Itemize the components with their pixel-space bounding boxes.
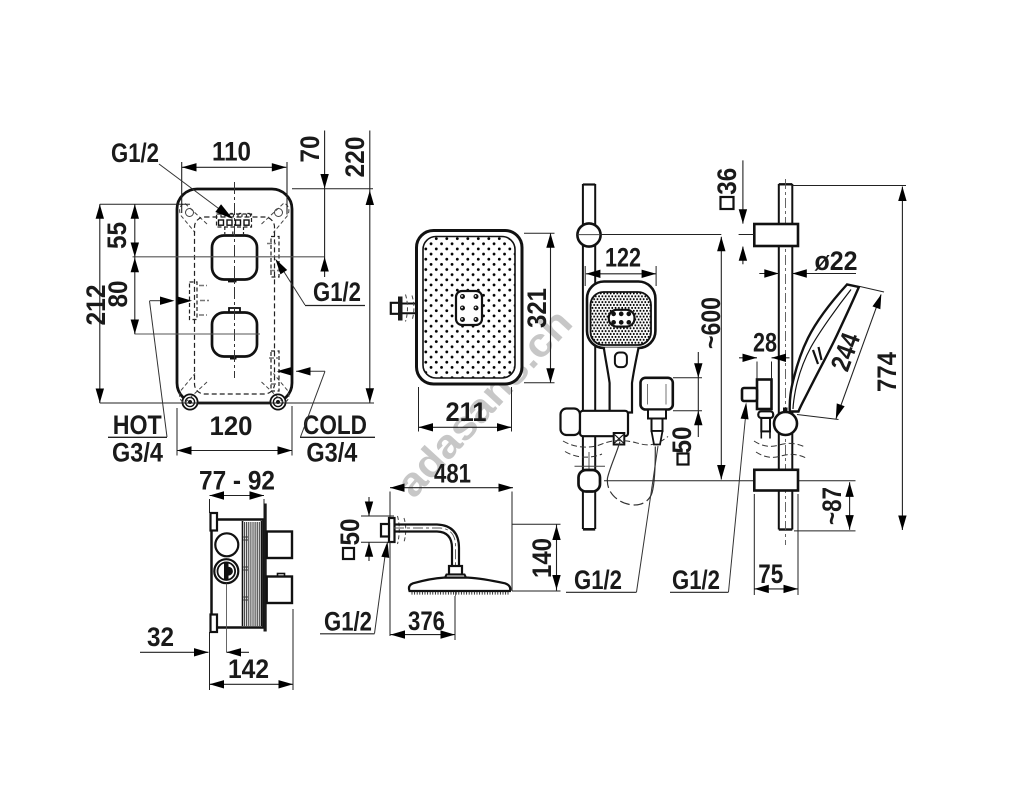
svg-text:321: 321 xyxy=(522,288,552,328)
svg-text:G1/2: G1/2 xyxy=(324,607,372,637)
svg-text:122: 122 xyxy=(605,243,641,273)
svg-text:G1/2: G1/2 xyxy=(313,277,361,307)
svg-text:28: 28 xyxy=(753,328,777,358)
svg-text:ø22: ø22 xyxy=(815,246,858,276)
svg-text:142: 142 xyxy=(228,654,269,684)
svg-text:77 - 92: 77 - 92 xyxy=(199,466,275,496)
svg-text:774: 774 xyxy=(872,352,902,392)
svg-text:G3/4: G3/4 xyxy=(306,438,357,468)
svg-text:HOT: HOT xyxy=(113,410,162,440)
svg-text:75: 75 xyxy=(758,559,783,589)
svg-text:220: 220 xyxy=(340,137,370,178)
svg-text:110: 110 xyxy=(212,137,251,167)
svg-text:481: 481 xyxy=(434,459,471,489)
svg-text:140: 140 xyxy=(527,538,557,578)
svg-text:COLD: COLD xyxy=(303,410,367,440)
svg-text:G3/4: G3/4 xyxy=(112,438,163,468)
svg-text:211: 211 xyxy=(446,397,487,427)
svg-text:120: 120 xyxy=(210,411,253,441)
svg-text:32: 32 xyxy=(147,622,174,652)
svg-text:G1/2: G1/2 xyxy=(111,138,159,168)
svg-text:50: 50 xyxy=(335,519,365,546)
svg-text:50: 50 xyxy=(667,427,697,454)
svg-text:376: 376 xyxy=(408,606,445,636)
svg-text:55: 55 xyxy=(102,222,132,249)
svg-text:80: 80 xyxy=(103,281,133,308)
svg-text:70: 70 xyxy=(295,136,325,163)
svg-text:G1/2: G1/2 xyxy=(574,565,622,595)
svg-text:~87: ~87 xyxy=(817,487,847,525)
svg-text:~600: ~600 xyxy=(696,297,726,349)
svg-text:36: 36 xyxy=(712,168,742,195)
svg-text:G1/2: G1/2 xyxy=(672,565,720,595)
